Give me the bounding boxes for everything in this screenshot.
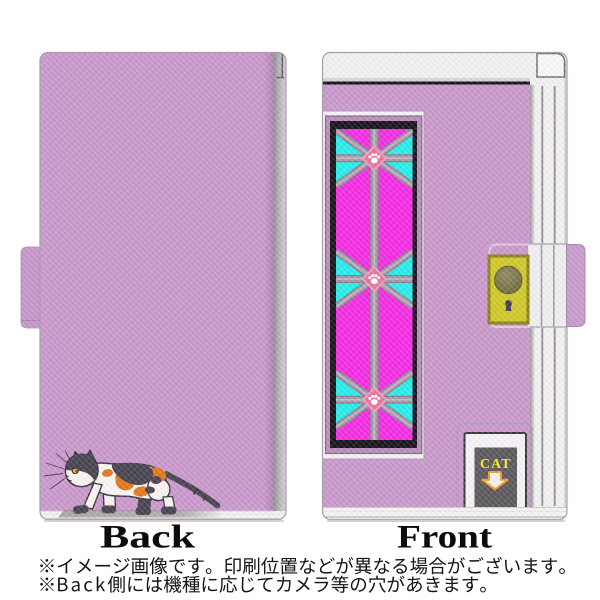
svg-text:Front: Front <box>397 520 492 556</box>
svg-text:Back: Back <box>100 520 196 556</box>
